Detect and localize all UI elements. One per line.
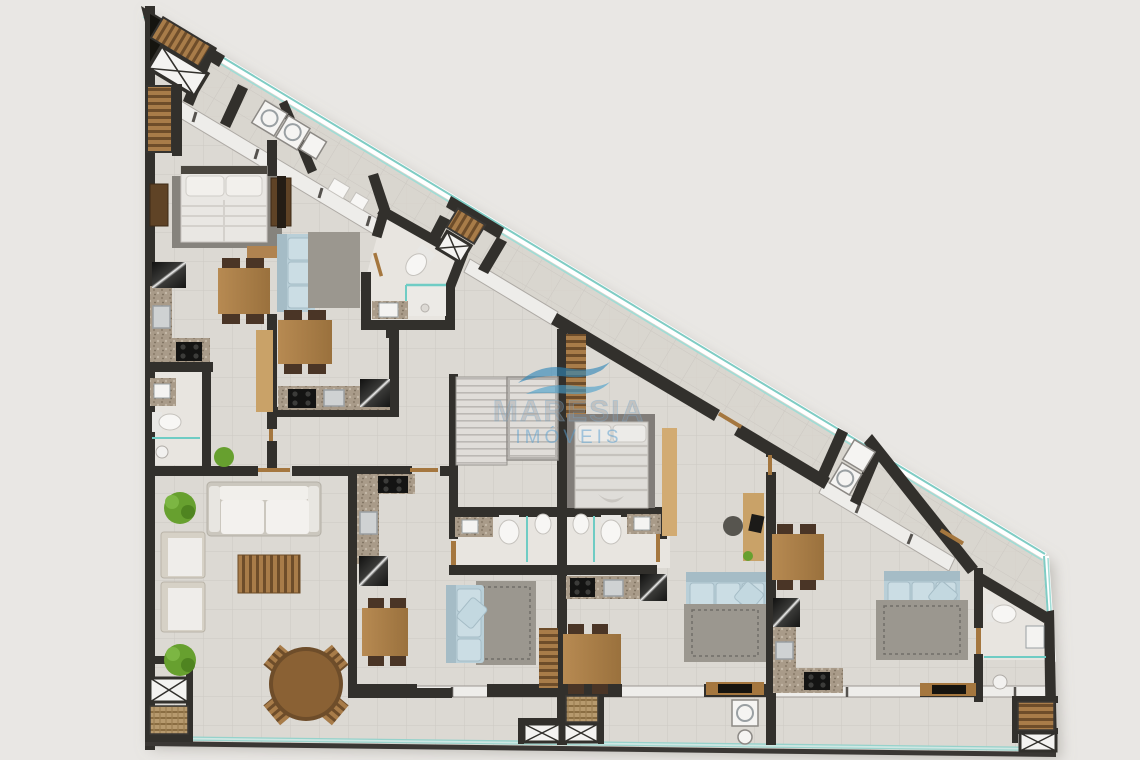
svg-text:MARESIA: MARESIA — [493, 395, 645, 428]
svg-text:IMÓVEIS: IMÓVEIS — [515, 426, 622, 448]
